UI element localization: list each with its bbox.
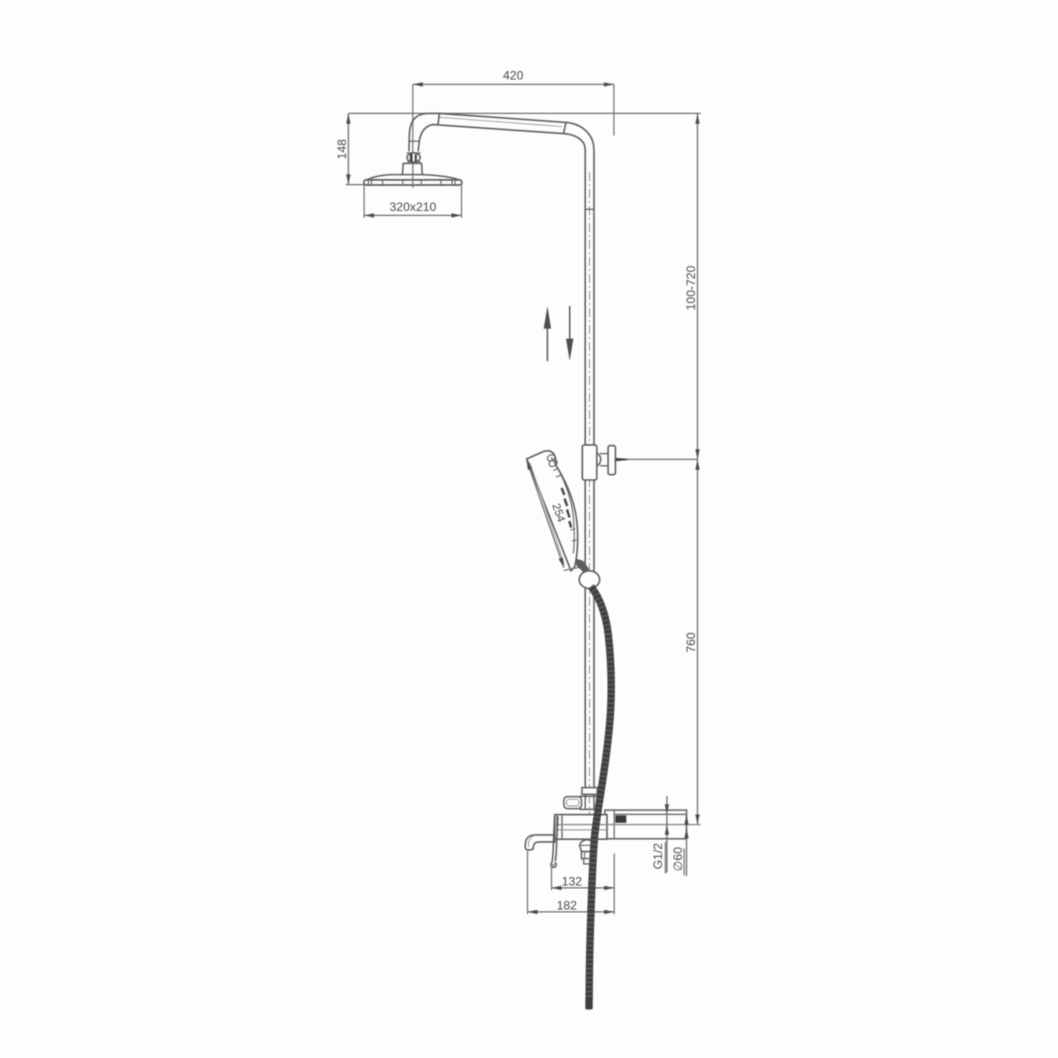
svg-text:420: 420 (503, 69, 524, 83)
svg-text:182: 182 (557, 899, 578, 913)
svg-text:132: 132 (562, 875, 583, 889)
svg-text:148: 148 (335, 139, 349, 160)
svg-text:760: 760 (684, 632, 698, 653)
svg-text:G1/2: G1/2 (651, 843, 665, 870)
svg-text:100-720: 100-720 (684, 265, 698, 310)
svg-text:320x210: 320x210 (390, 200, 437, 214)
svg-text:∅60: ∅60 (671, 847, 685, 871)
